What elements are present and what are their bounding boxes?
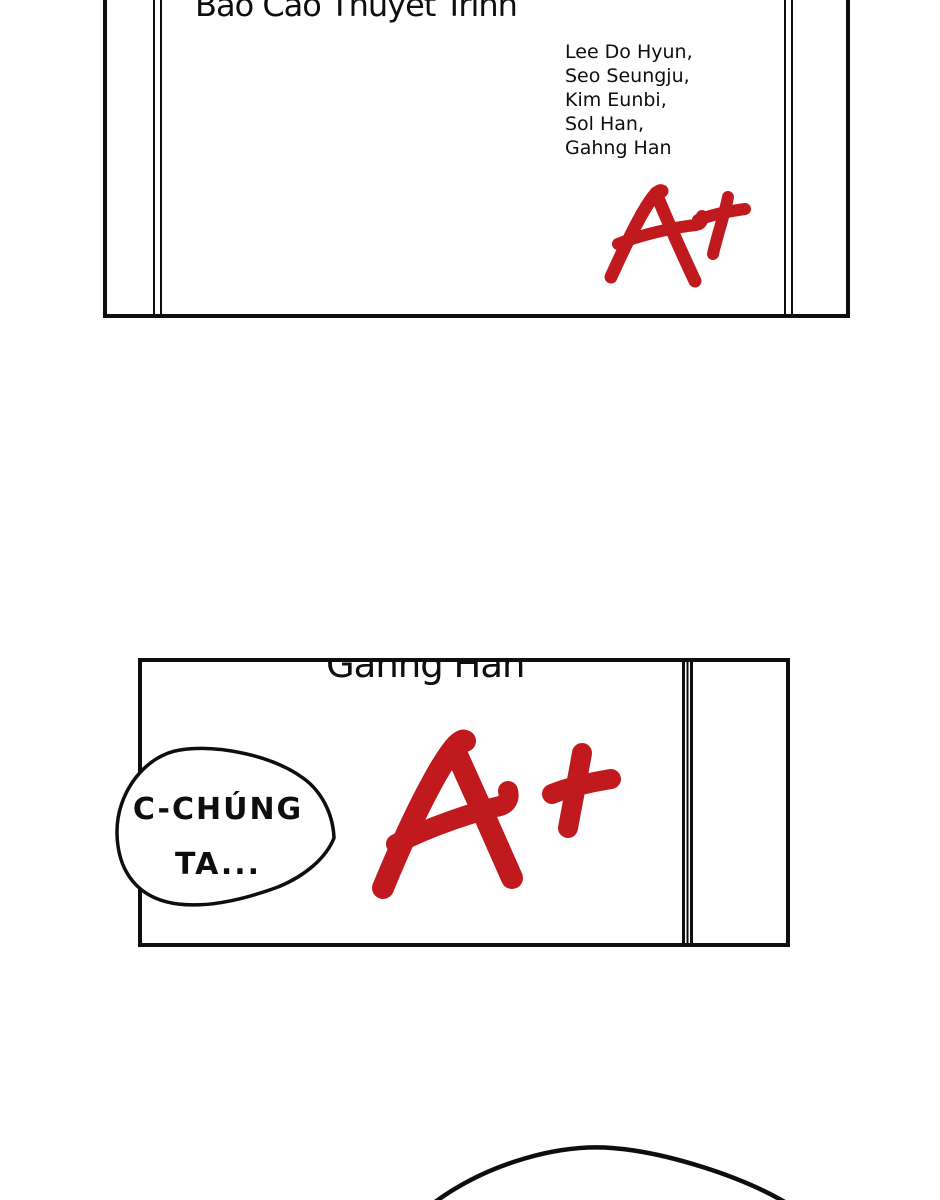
author-name: Gahng Han — [565, 136, 693, 160]
comic-page: Báo Cáo Thuyết Trình Lee Do Hyun, Seo Se… — [0, 0, 940, 1200]
bubble-line: TA... — [104, 850, 332, 880]
speech-bubble: C-CHÚNG TA... — [98, 740, 346, 916]
paper-edge-lines-right — [784, 0, 793, 314]
paper-edge-lines — [682, 662, 693, 943]
grade-a-plus-icon — [598, 180, 758, 292]
panel-report-content: Báo Cáo Thuyết Trình Lee Do Hyun, Seo Se… — [107, 0, 846, 314]
paper-edge-lines-left — [153, 0, 162, 314]
author-name: Kim Eunbi, — [565, 88, 693, 112]
clipped-author-name: Gahng Han — [326, 662, 524, 683]
author-name: Seo Seungju, — [565, 64, 693, 88]
grade-a-plus-icon — [366, 728, 626, 908]
author-name: Sol Han, — [565, 112, 693, 136]
author-name: Lee Do Hyun, — [565, 40, 693, 64]
character-head-outline-icon — [420, 1140, 810, 1200]
report-author-list: Lee Do Hyun, Seo Seungju, Kim Eunbi, Sol… — [565, 40, 693, 160]
panel-report-paper: Báo Cáo Thuyết Trình Lee Do Hyun, Seo Se… — [103, 0, 850, 318]
bubble-line: C-CHÚNG — [104, 795, 332, 825]
report-title: Báo Cáo Thuyết Trình — [195, 0, 517, 21]
speech-bubble-text: C-CHÚNG TA... — [104, 740, 332, 916]
grade-value: A+ — [142, 662, 143, 663]
